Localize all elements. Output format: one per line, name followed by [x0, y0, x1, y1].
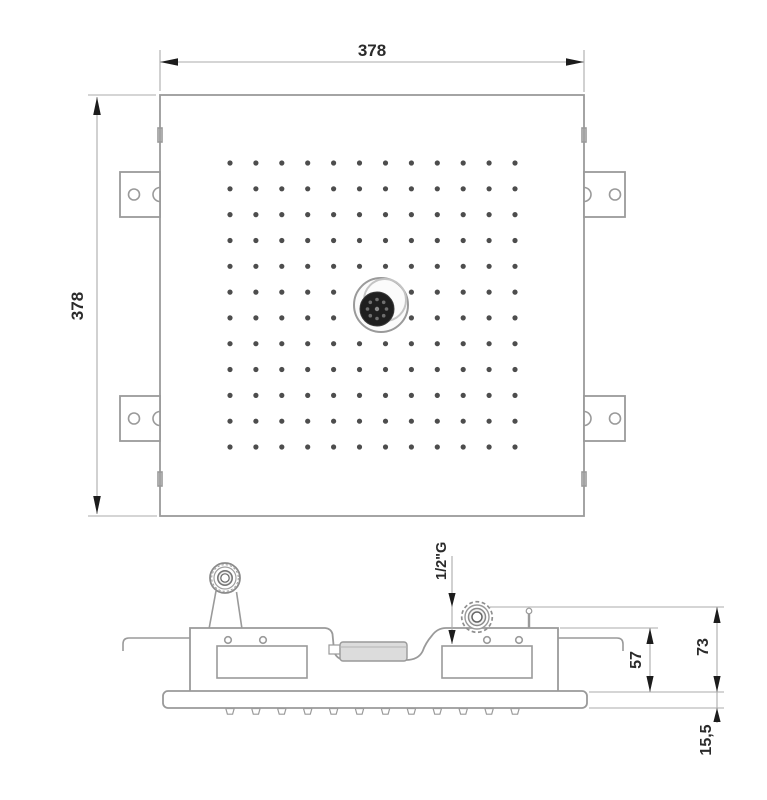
spray-dot	[383, 212, 388, 217]
spray-dot	[279, 212, 284, 217]
spray-dot	[279, 186, 284, 191]
spray-dot	[331, 341, 336, 346]
spray-dot	[435, 186, 440, 191]
spray-dot	[409, 444, 414, 449]
spray-dot	[487, 341, 492, 346]
dimension-top-width: 378	[160, 41, 584, 92]
spray-dot	[409, 315, 414, 320]
bracket-right-top	[584, 172, 625, 217]
spray-dot	[461, 367, 466, 372]
spray-dot	[435, 238, 440, 243]
dim-arrow-down-icon	[93, 496, 101, 514]
dim-arrow-right-icon	[566, 58, 584, 66]
spray-dot	[409, 186, 414, 191]
plate-nozzle	[278, 709, 286, 715]
spray-dot	[331, 444, 336, 449]
side-view: 1/2"G 57	[123, 542, 724, 756]
spray-dot	[357, 393, 362, 398]
dim-arrow-left-icon	[160, 58, 178, 66]
spray-dot	[305, 393, 310, 398]
spray-dot	[409, 264, 414, 269]
spray-dot	[357, 160, 362, 165]
spray-dot	[253, 186, 258, 191]
spray-dot	[227, 160, 232, 165]
spray-dot	[357, 238, 362, 243]
spray-dot	[279, 238, 284, 243]
spray-dot	[512, 238, 517, 243]
spray-dot	[227, 264, 232, 269]
top-view: 378 378	[68, 41, 625, 516]
plate-nozzle	[329, 709, 337, 715]
spray-dot	[461, 238, 466, 243]
plate-thickness-label: 15,5	[698, 724, 715, 755]
spray-dot	[253, 315, 258, 320]
spray-dot	[409, 290, 414, 295]
plate-nozzle	[407, 709, 415, 715]
housing-depth-label: 57	[628, 651, 645, 669]
spray-dot	[461, 341, 466, 346]
spray-dot	[409, 341, 414, 346]
dimension-left-height: 378	[68, 95, 157, 516]
spray-dot	[512, 393, 517, 398]
spray-dot	[305, 160, 310, 165]
plate-nozzle	[459, 709, 467, 715]
spray-dot	[512, 160, 517, 165]
spray-dot	[227, 238, 232, 243]
spray-dot	[227, 290, 232, 295]
spray-dot	[435, 160, 440, 165]
technical-drawing: 378 378	[0, 0, 767, 800]
spray-dot	[512, 212, 517, 217]
wing-right	[558, 638, 623, 651]
spray-dot	[357, 367, 362, 372]
spray-dot	[279, 160, 284, 165]
spray-dot	[435, 264, 440, 269]
spray-dot	[331, 419, 336, 424]
spray-dot	[512, 444, 517, 449]
spray-dot	[331, 290, 336, 295]
spray-dot	[487, 290, 492, 295]
spray-dot	[331, 393, 336, 398]
spray-dot	[383, 160, 388, 165]
spray-dot	[357, 186, 362, 191]
spray-dot	[227, 341, 232, 346]
spray-dot	[357, 444, 362, 449]
spray-dot	[435, 393, 440, 398]
alignment-peg	[526, 608, 532, 628]
spray-dot	[487, 186, 492, 191]
spray-dot	[461, 315, 466, 320]
spray-dot	[227, 444, 232, 449]
spray-dot	[487, 315, 492, 320]
spray-dot	[305, 238, 310, 243]
spray-dot	[487, 393, 492, 398]
spray-dot	[279, 367, 284, 372]
spray-dot	[487, 160, 492, 165]
plate-nozzle	[433, 709, 441, 715]
spray-dot	[383, 238, 388, 243]
spray-dot	[331, 160, 336, 165]
spray-dot	[227, 393, 232, 398]
spray-dot	[383, 264, 388, 269]
spray-dot	[227, 315, 232, 320]
spray-dot	[461, 290, 466, 295]
spray-dot	[331, 315, 336, 320]
spray-dot	[487, 419, 492, 424]
spray-dot	[383, 341, 388, 346]
spray-dot	[331, 186, 336, 191]
spray-dot	[409, 212, 414, 217]
spray-dot	[357, 341, 362, 346]
fitting-core-holes	[366, 298, 389, 321]
spray-dot	[305, 212, 310, 217]
spray-dot	[461, 212, 466, 217]
spray-dot	[383, 367, 388, 372]
face-plate	[163, 691, 587, 708]
spray-dot	[253, 341, 258, 346]
spray-dot	[305, 290, 310, 295]
spray-dot	[227, 212, 232, 217]
spray-dot	[409, 393, 414, 398]
spray-dot	[512, 367, 517, 372]
spray-dot	[305, 264, 310, 269]
plate-nozzle	[226, 709, 234, 715]
spray-dot	[279, 419, 284, 424]
spray-dot	[435, 444, 440, 449]
spray-dot	[305, 341, 310, 346]
spray-dot	[409, 160, 414, 165]
left-height-label: 378	[68, 292, 87, 320]
spray-dot	[383, 419, 388, 424]
spray-dot	[253, 238, 258, 243]
spray-dot	[409, 419, 414, 424]
spray-dot	[253, 212, 258, 217]
recess-block	[329, 642, 407, 661]
inlet-thread-label: 1/2"G	[434, 542, 450, 580]
spray-dot	[305, 367, 310, 372]
total-depth-label: 73	[695, 638, 712, 656]
spray-dot	[461, 160, 466, 165]
spray-dot	[461, 186, 466, 191]
dim-arrow-up-icon	[93, 97, 101, 115]
spray-dot	[512, 315, 517, 320]
spray-dot	[357, 212, 362, 217]
spray-dot	[305, 186, 310, 191]
bracket-right-bottom	[584, 396, 625, 441]
spray-dot	[487, 367, 492, 372]
spray-dot	[512, 341, 517, 346]
spray-dot	[227, 419, 232, 424]
spray-dot	[487, 238, 492, 243]
spray-dot	[305, 315, 310, 320]
spray-dot	[279, 444, 284, 449]
face-plate-nozzles	[226, 709, 519, 715]
spray-dot	[435, 212, 440, 217]
spray-dot	[461, 444, 466, 449]
spray-dot	[331, 367, 336, 372]
spray-dot	[227, 367, 232, 372]
spray-dot	[305, 419, 310, 424]
spray-dot	[435, 290, 440, 295]
spray-dot	[512, 419, 517, 424]
wing-left	[123, 638, 190, 651]
spray-dot	[279, 341, 284, 346]
dimension-total-depth: 73	[695, 607, 721, 692]
spray-dot	[305, 444, 310, 449]
spray-dot	[383, 444, 388, 449]
spray-dot	[279, 264, 284, 269]
spray-dot	[512, 264, 517, 269]
plate-nozzle	[381, 709, 389, 715]
spray-dot	[383, 393, 388, 398]
spray-dot	[227, 186, 232, 191]
spray-dot	[253, 444, 258, 449]
spray-dot	[435, 341, 440, 346]
spray-dot	[435, 315, 440, 320]
dimension-plate-thickness: 15,5	[589, 692, 724, 756]
spray-dot	[253, 264, 258, 269]
spray-dot	[435, 419, 440, 424]
spray-dot	[512, 290, 517, 295]
plate-nozzle	[252, 709, 260, 715]
leader-arrow-icon	[448, 593, 455, 607]
spray-dot	[383, 186, 388, 191]
spray-dot	[435, 367, 440, 372]
spray-dot	[253, 290, 258, 295]
spray-dot	[409, 238, 414, 243]
mounting-wheel	[209, 563, 242, 629]
spray-dot	[487, 264, 492, 269]
spray-dot	[279, 393, 284, 398]
plate-nozzle	[485, 709, 493, 715]
spray-dot	[357, 419, 362, 424]
spray-dot	[461, 419, 466, 424]
technical-drawing-page: 378 378	[0, 0, 767, 800]
spray-dot	[253, 393, 258, 398]
spray-dot	[512, 186, 517, 191]
spray-dot	[279, 315, 284, 320]
plate-nozzle	[511, 709, 519, 715]
top-width-label: 378	[358, 41, 386, 60]
spray-dot	[487, 212, 492, 217]
plate-nozzle	[355, 709, 363, 715]
spray-dot	[357, 264, 362, 269]
spray-dot	[253, 367, 258, 372]
spray-dot	[331, 238, 336, 243]
plate-nozzle	[304, 709, 312, 715]
spray-dot	[253, 160, 258, 165]
spray-dot	[461, 393, 466, 398]
spray-dot	[487, 444, 492, 449]
center-fitting	[354, 278, 408, 332]
spray-dot	[253, 419, 258, 424]
spray-dot	[279, 290, 284, 295]
spray-dot	[461, 264, 466, 269]
spray-dot	[409, 367, 414, 372]
spray-dot	[331, 212, 336, 217]
spray-dot	[331, 264, 336, 269]
